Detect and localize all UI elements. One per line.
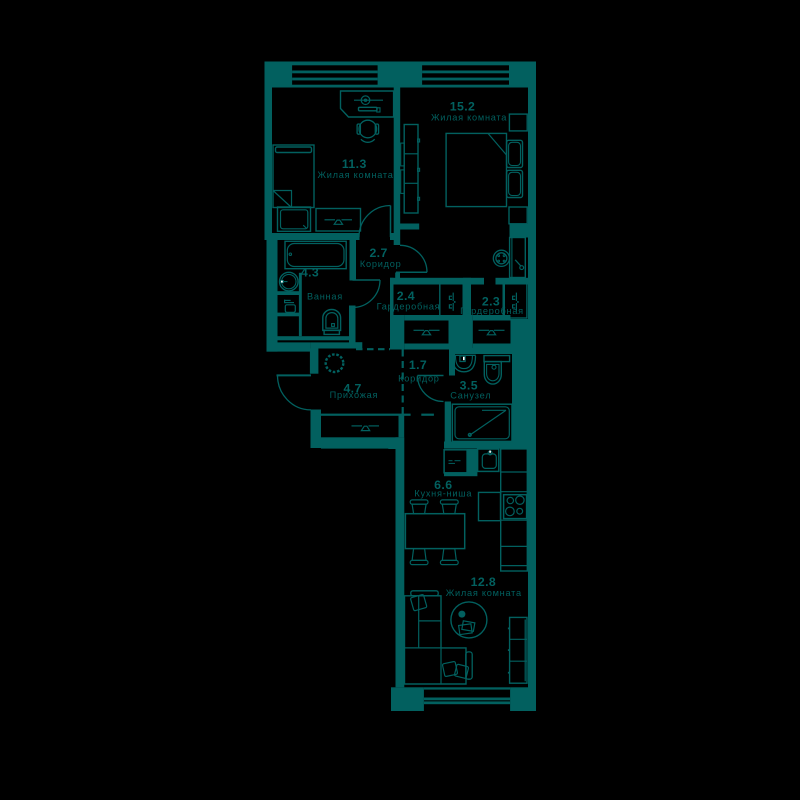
svg-text:Коридор: Коридор: [398, 374, 440, 384]
svg-text:Гардеробная: Гардеробная: [460, 306, 524, 316]
svg-text:12.8: 12.8: [471, 575, 497, 589]
svg-text:Гардеробная: Гардеробная: [377, 301, 441, 311]
svg-text:Коридор: Коридор: [360, 259, 402, 269]
svg-text:Ванная: Ванная: [307, 291, 343, 301]
svg-text:Жилая комната: Жилая комната: [318, 170, 394, 180]
svg-text:11.3: 11.3: [342, 157, 367, 171]
svg-text:Санузел: Санузел: [450, 391, 491, 401]
svg-text:1.7: 1.7: [409, 358, 427, 372]
svg-text:Кухня-ниша: Кухня-ниша: [414, 489, 472, 499]
svg-text:4.3: 4.3: [301, 266, 319, 280]
svg-text:Жилая комната: Жилая комната: [431, 112, 507, 122]
svg-text:Жилая комната: Жилая комната: [446, 588, 522, 598]
svg-text:Прихожая: Прихожая: [330, 390, 379, 400]
